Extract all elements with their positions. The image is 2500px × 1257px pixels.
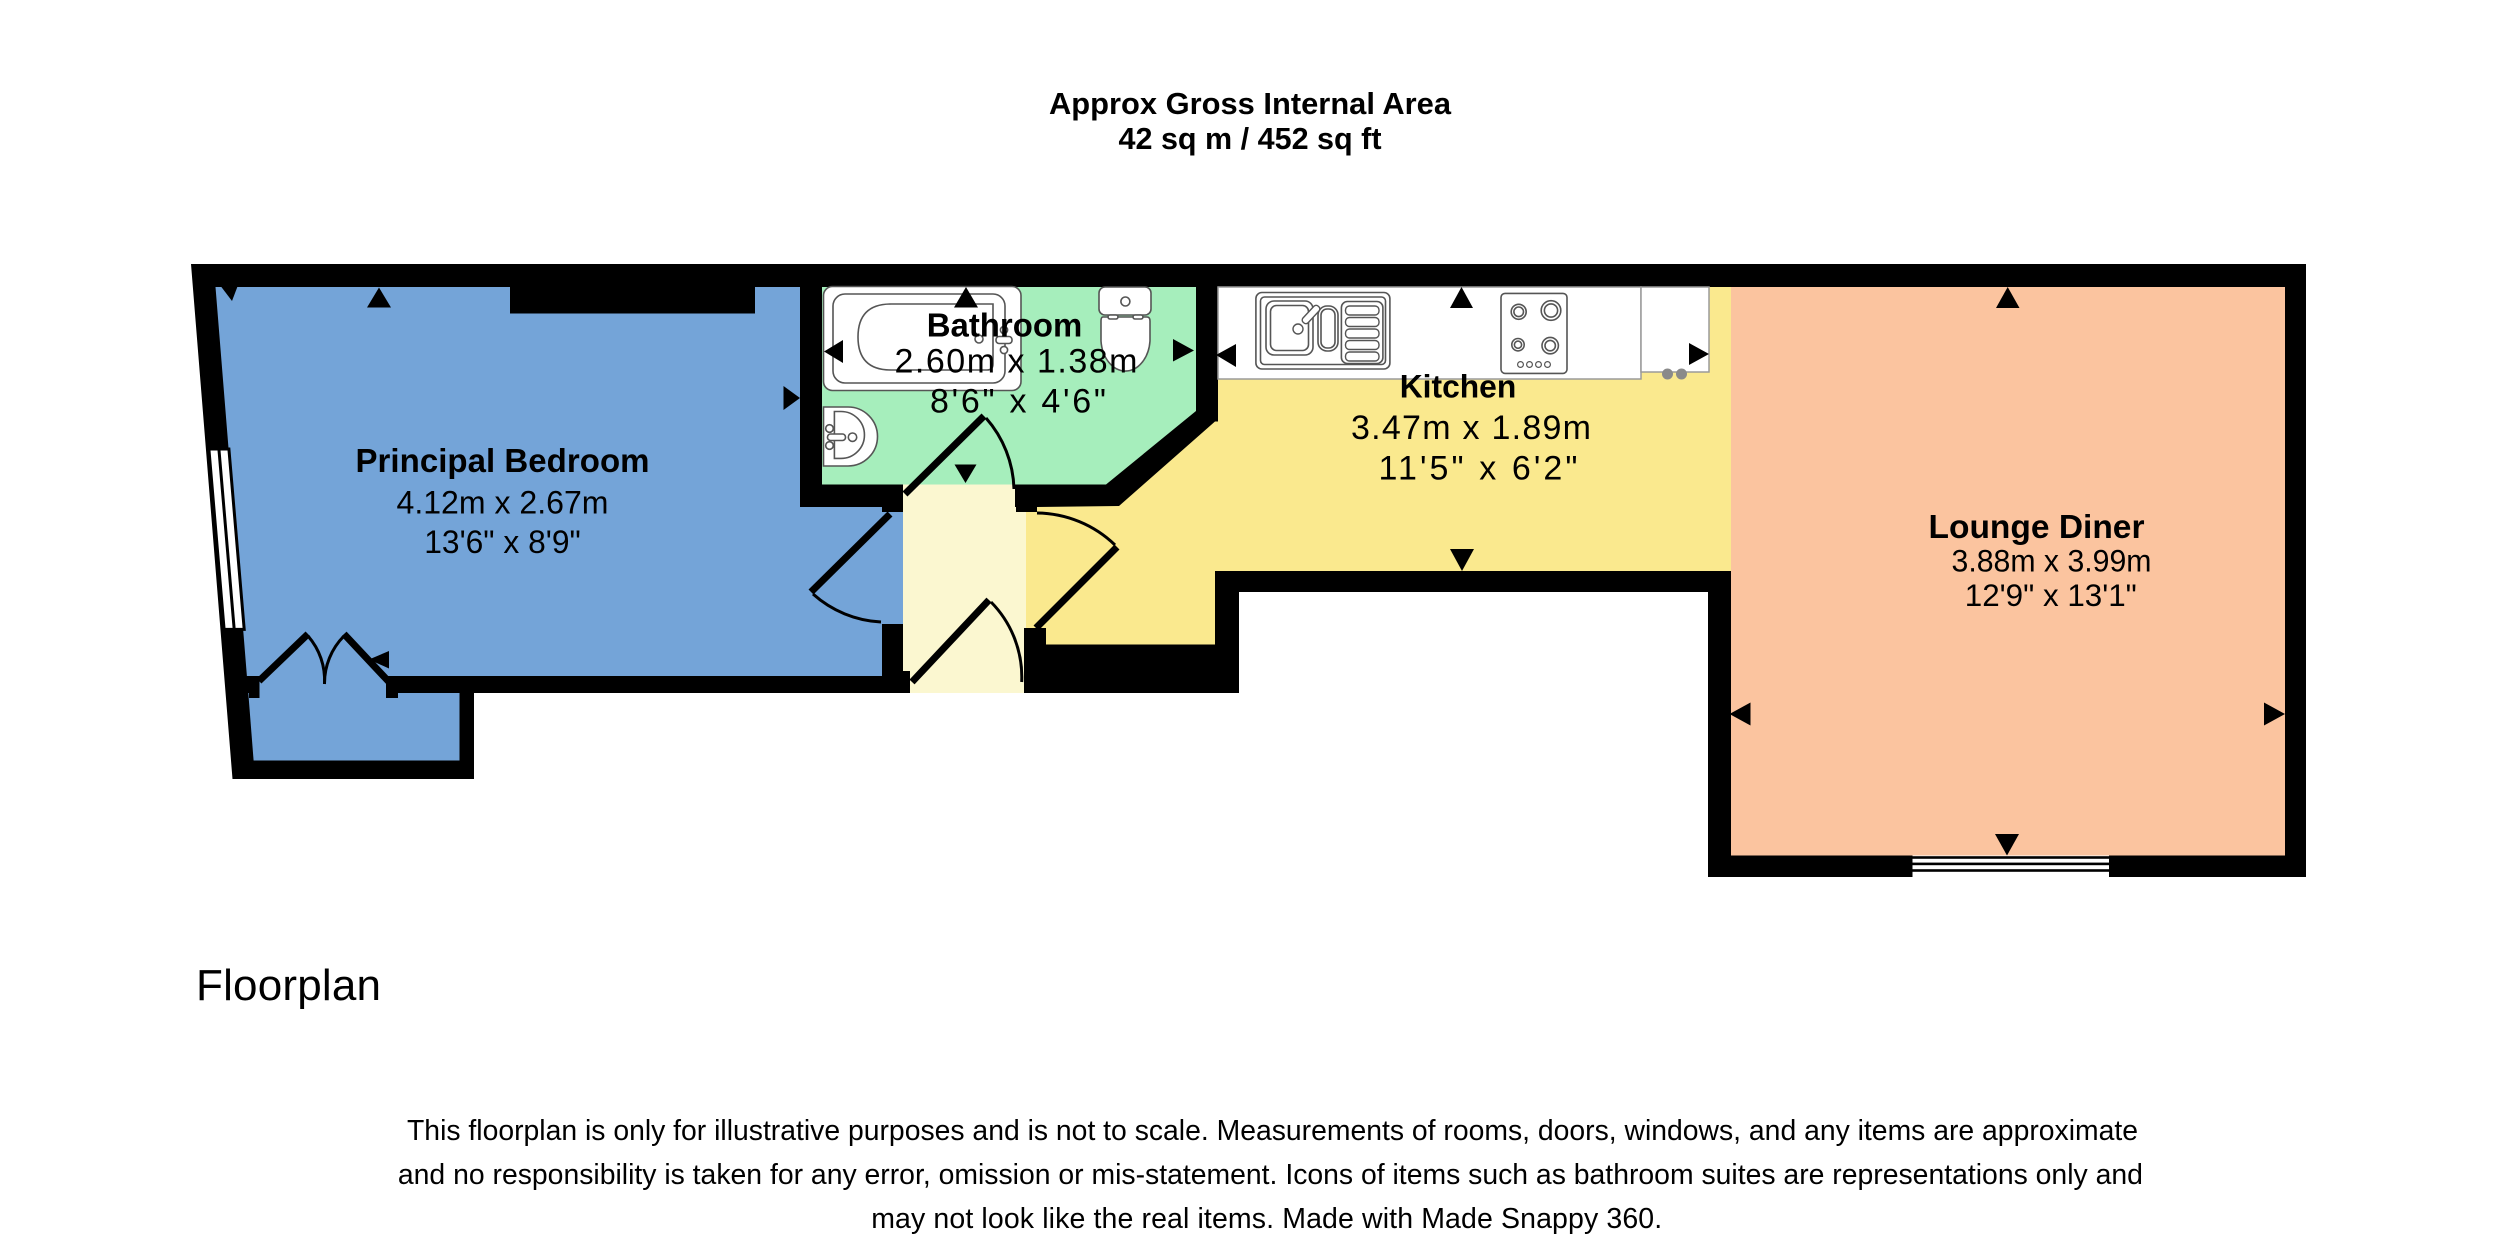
svg-text:3.47m x 1.89m: 3.47m x 1.89m xyxy=(1351,409,1591,447)
svg-text:12'9" x 13'1": 12'9" x 13'1" xyxy=(1965,577,2137,613)
svg-text:Approx Gross Internal Area: Approx Gross Internal Area xyxy=(1049,86,1452,121)
svg-text:Floorplan: Floorplan xyxy=(196,961,381,1010)
svg-text:2.60m x 1.38m: 2.60m x 1.38m xyxy=(895,343,1138,381)
svg-text:Lounge Diner: Lounge Diner xyxy=(1929,509,2145,546)
svg-text:4.12m x 2.67m: 4.12m x 2.67m xyxy=(397,485,609,521)
svg-text:may not look like the real ite: may not look like the real items. Made w… xyxy=(871,1203,1662,1235)
svg-text:Kitchen: Kitchen xyxy=(1400,369,1517,405)
svg-text:13'6" x 8'9": 13'6" x 8'9" xyxy=(424,524,581,560)
svg-text:Bathroom: Bathroom xyxy=(927,307,1083,344)
svg-text:8'6" x 4'6": 8'6" x 4'6" xyxy=(930,383,1106,421)
svg-text:42 sq m / 452 sq ft: 42 sq m / 452 sq ft xyxy=(1119,121,1382,156)
svg-text:Principal Bedroom: Principal Bedroom xyxy=(356,442,650,479)
svg-text:This floorplan is only for ill: This floorplan is only for illustrative … xyxy=(407,1115,2138,1147)
svg-text:and no responsibility is taken: and no responsibility is taken for any e… xyxy=(398,1159,2143,1191)
svg-text:3.88m x 3.99m: 3.88m x 3.99m xyxy=(1952,543,2152,579)
